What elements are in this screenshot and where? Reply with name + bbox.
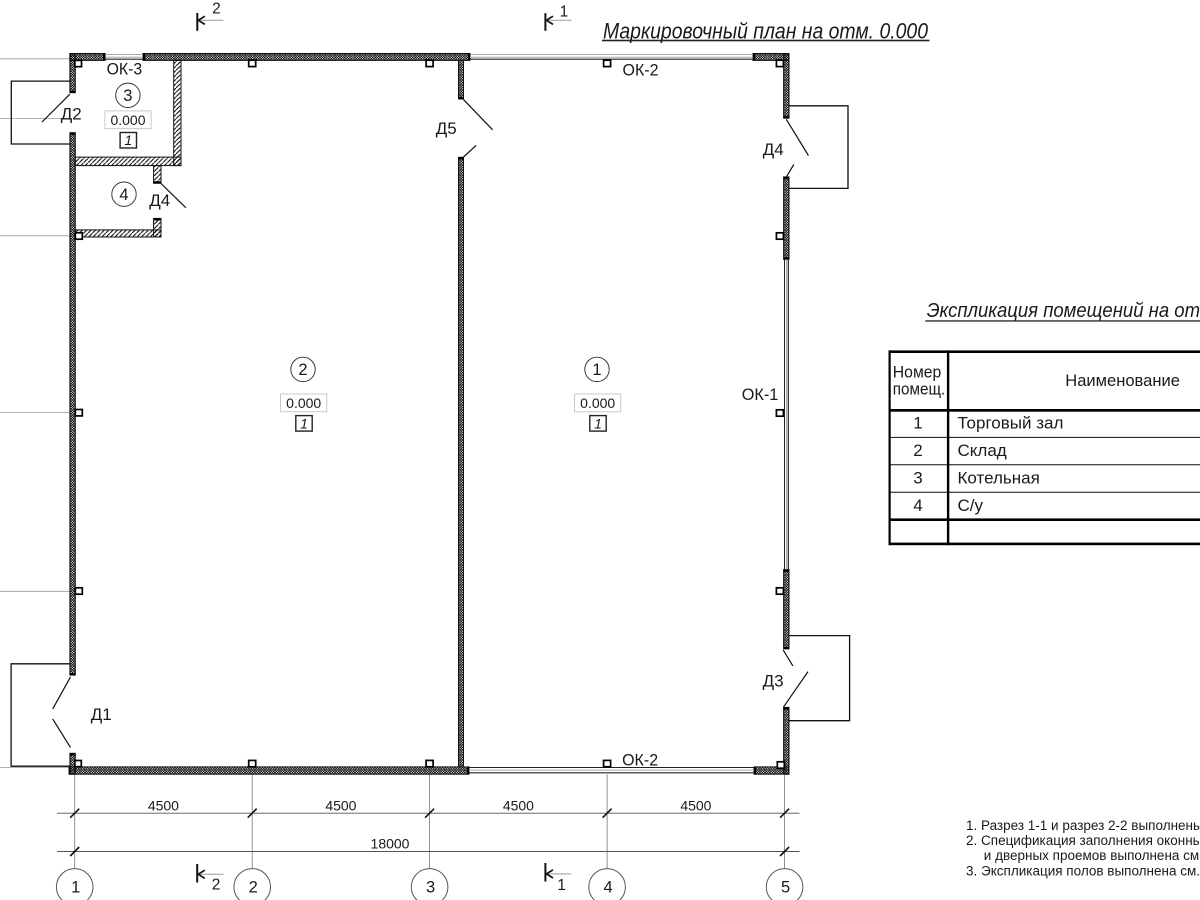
svg-text:0.000: 0.000: [110, 112, 145, 128]
svg-text:Д4: Д4: [149, 191, 170, 210]
svg-text:1: 1: [557, 877, 566, 894]
svg-text:3: 3: [123, 87, 132, 105]
svg-text:Д1: Д1: [91, 705, 112, 724]
svg-text:ОК-1: ОК-1: [742, 385, 779, 404]
svg-text:2: 2: [212, 1, 221, 18]
svg-text:2. Спецификация заполнения око: 2. Спецификация заполнения оконных: [966, 833, 1200, 848]
svg-text:ОК-3: ОК-3: [107, 59, 143, 78]
svg-text:Д2: Д2: [61, 105, 82, 124]
svg-text:Номер: Номер: [893, 362, 942, 381]
svg-text:1. Разрез 1-1 и разрез 2-2 вып: 1. Разрез 1-1 и разрез 2-2 выполнены на …: [966, 818, 1200, 833]
svg-text:1: 1: [560, 4, 569, 21]
svg-text:3: 3: [913, 468, 922, 487]
svg-text:4500: 4500: [503, 797, 534, 813]
svg-text:3. Экспликация полов выполнена: 3. Экспликация полов выполнена см. лист …: [966, 863, 1200, 878]
svg-text:С/у: С/у: [958, 496, 984, 515]
svg-text:2: 2: [212, 876, 221, 893]
svg-text:2: 2: [913, 441, 922, 460]
svg-text:0.000: 0.000: [580, 395, 615, 411]
svg-text:4: 4: [604, 879, 613, 897]
svg-text:Наименование: Наименование: [1065, 371, 1180, 390]
svg-text:и дверных проемов выполнена см: и дверных проемов выполнена см. лист 6: [984, 848, 1200, 863]
svg-text:3: 3: [426, 879, 435, 897]
svg-text:5: 5: [781, 879, 790, 897]
svg-text:4500: 4500: [680, 797, 711, 813]
svg-text:1: 1: [913, 414, 922, 433]
svg-text:2: 2: [298, 361, 307, 379]
svg-text:Д5: Д5: [436, 119, 457, 138]
svg-text:помещ.: помещ.: [893, 380, 946, 399]
svg-text:18000: 18000: [371, 836, 410, 852]
svg-text:Маркировочный план на отм. 0.0: Маркировочный план на отм. 0.000: [603, 18, 929, 43]
svg-text:Котельная: Котельная: [958, 468, 1040, 487]
svg-text:4: 4: [119, 186, 128, 204]
svg-text:0.000: 0.000: [286, 395, 321, 411]
svg-text:4500: 4500: [148, 797, 179, 813]
svg-text:Экспликация помещений на отм.: Экспликация помещений на отм. 0.000: [927, 300, 1200, 322]
svg-text:Торговый зал: Торговый зал: [958, 414, 1064, 433]
svg-text:1: 1: [594, 415, 602, 431]
svg-text:1: 1: [71, 879, 80, 897]
svg-text:Склад: Склад: [958, 441, 1007, 460]
svg-text:4: 4: [913, 496, 922, 515]
svg-text:1: 1: [300, 415, 308, 431]
svg-text:ОК-2: ОК-2: [623, 61, 659, 80]
svg-text:1: 1: [124, 132, 132, 148]
svg-text:4500: 4500: [325, 797, 356, 813]
svg-text:1: 1: [592, 361, 601, 379]
svg-text:2: 2: [249, 879, 258, 897]
svg-text:Д3: Д3: [763, 671, 784, 690]
svg-text:Д4: Д4: [763, 140, 784, 159]
svg-text:ОК-2: ОК-2: [622, 750, 658, 769]
